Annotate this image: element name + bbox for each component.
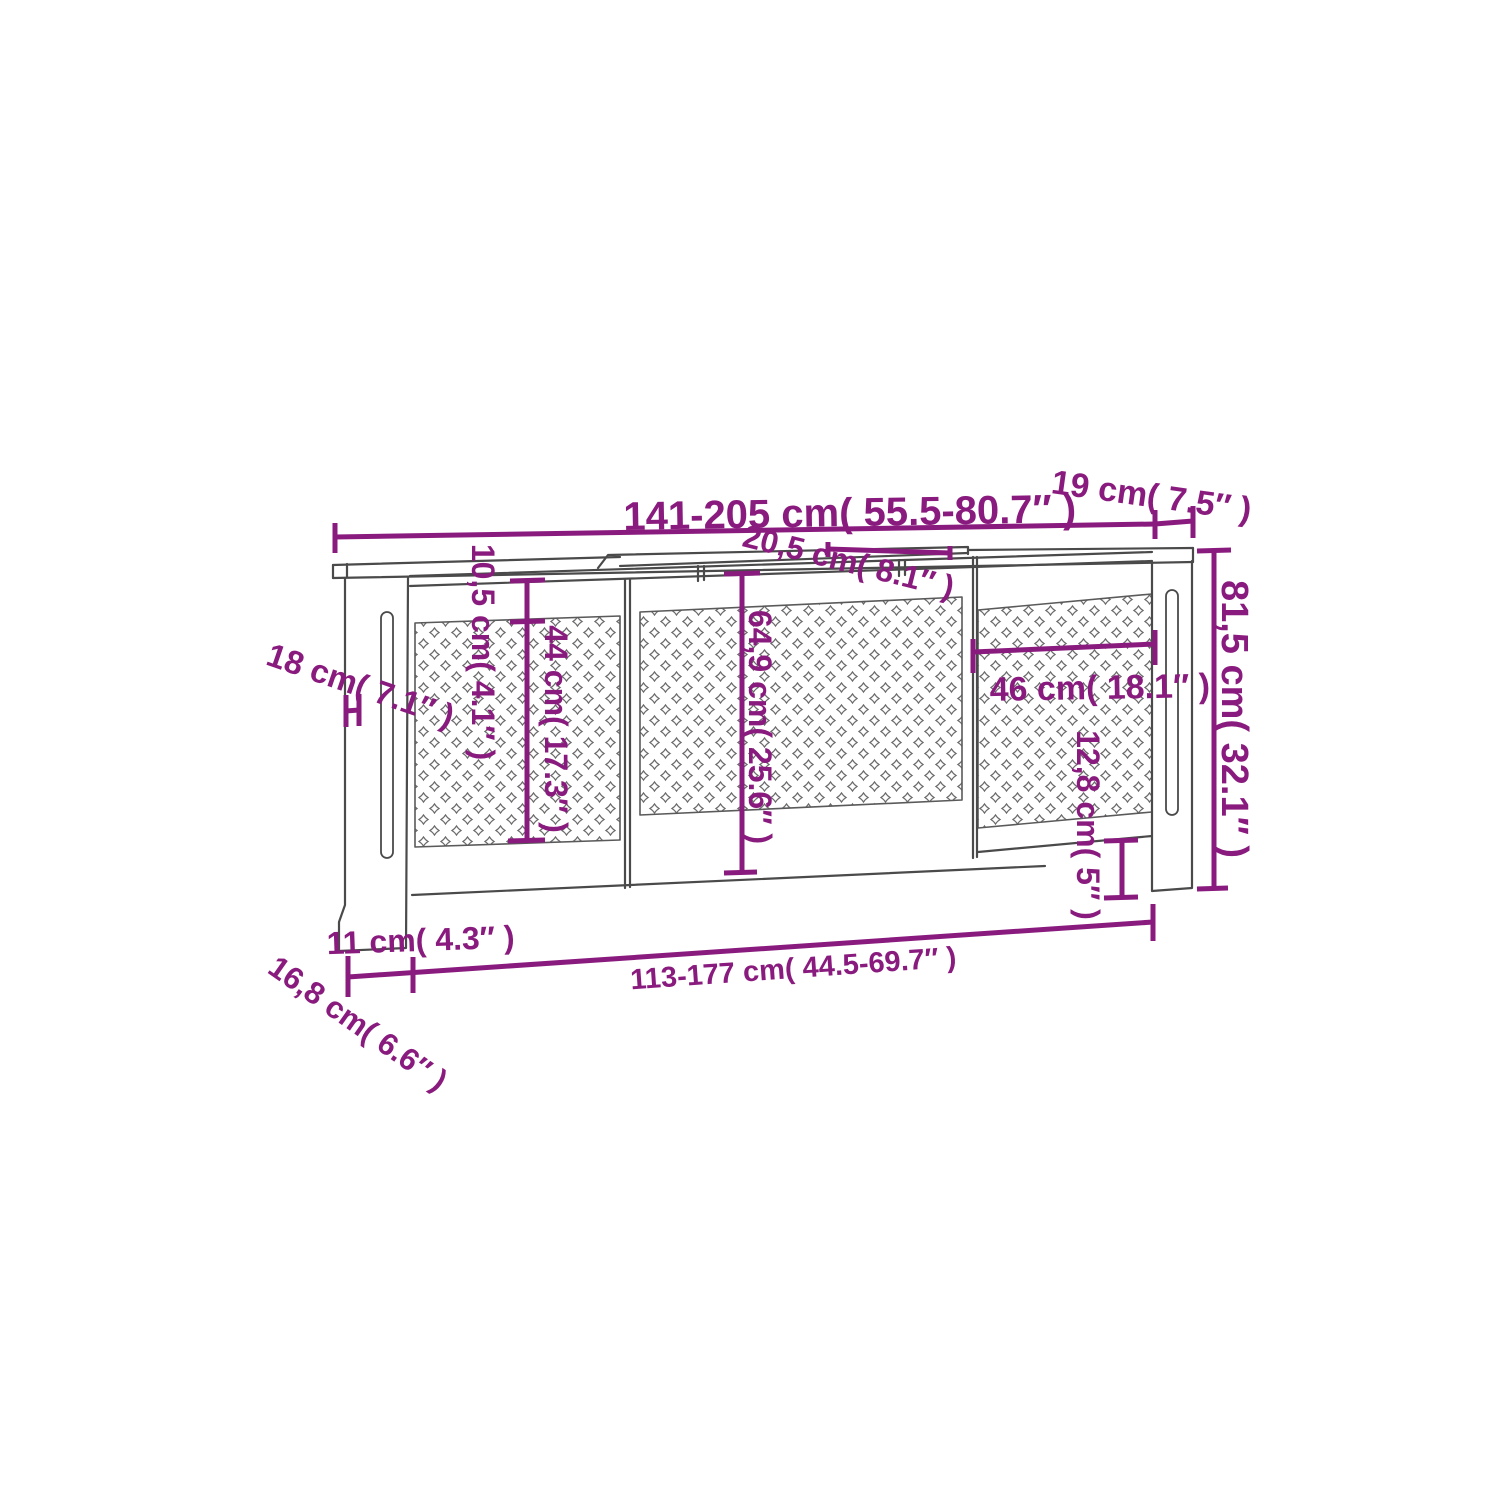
dimension-line bbox=[346, 710, 359, 711]
dimension-line bbox=[1197, 888, 1228, 889]
dimension-label-top-width: 141-205 cm( 55.5-80.7″ ) bbox=[623, 487, 1076, 539]
dimension-line bbox=[1104, 840, 1138, 841]
radiator-cover-dimension-diagram: 141-205 cm( 55.5-80.7″ )19 cm( 7.5″ )20,… bbox=[0, 0, 1500, 1500]
left-leg bbox=[339, 578, 408, 951]
dimension-line bbox=[510, 621, 545, 622]
dimension-label-center-panel-height: 64,9 cm( 25.6″ ) bbox=[742, 610, 778, 844]
dimension-label-total-height: 81,5 cm( 32.1″ ) bbox=[1213, 580, 1255, 858]
lattice-panel-center bbox=[640, 597, 962, 815]
left-leg-slot bbox=[381, 612, 393, 858]
dimension-line bbox=[1104, 897, 1138, 898]
dimension-label-bottom-gap-height: 12,8 cm( 5″ ) bbox=[1070, 730, 1106, 920]
dimension-line bbox=[508, 840, 545, 841]
dimension-line bbox=[724, 573, 760, 574]
dimension-line bbox=[1197, 550, 1231, 551]
dimension-label-right-panel-width: 46 cm( 18.1″ ) bbox=[989, 667, 1210, 709]
dimension-label-foot-offset: 11 cm( 4.3″ ) bbox=[326, 919, 515, 962]
right-leg bbox=[1152, 561, 1192, 891]
dimension-label-top-gap-height: 10,5 cm( 4.1″ ) bbox=[465, 544, 501, 760]
dimension-label-side-panel-height: 44 cm( 17.3″ ) bbox=[538, 625, 574, 832]
dimension-line bbox=[510, 580, 545, 581]
dimension-line bbox=[1155, 521, 1193, 524]
lattice-panel-right bbox=[978, 594, 1152, 828]
dimension-line bbox=[724, 872, 757, 873]
diagram-canvas: 141-205 cm( 55.5-80.7″ )19 cm( 7.5″ )20,… bbox=[0, 0, 1500, 1500]
